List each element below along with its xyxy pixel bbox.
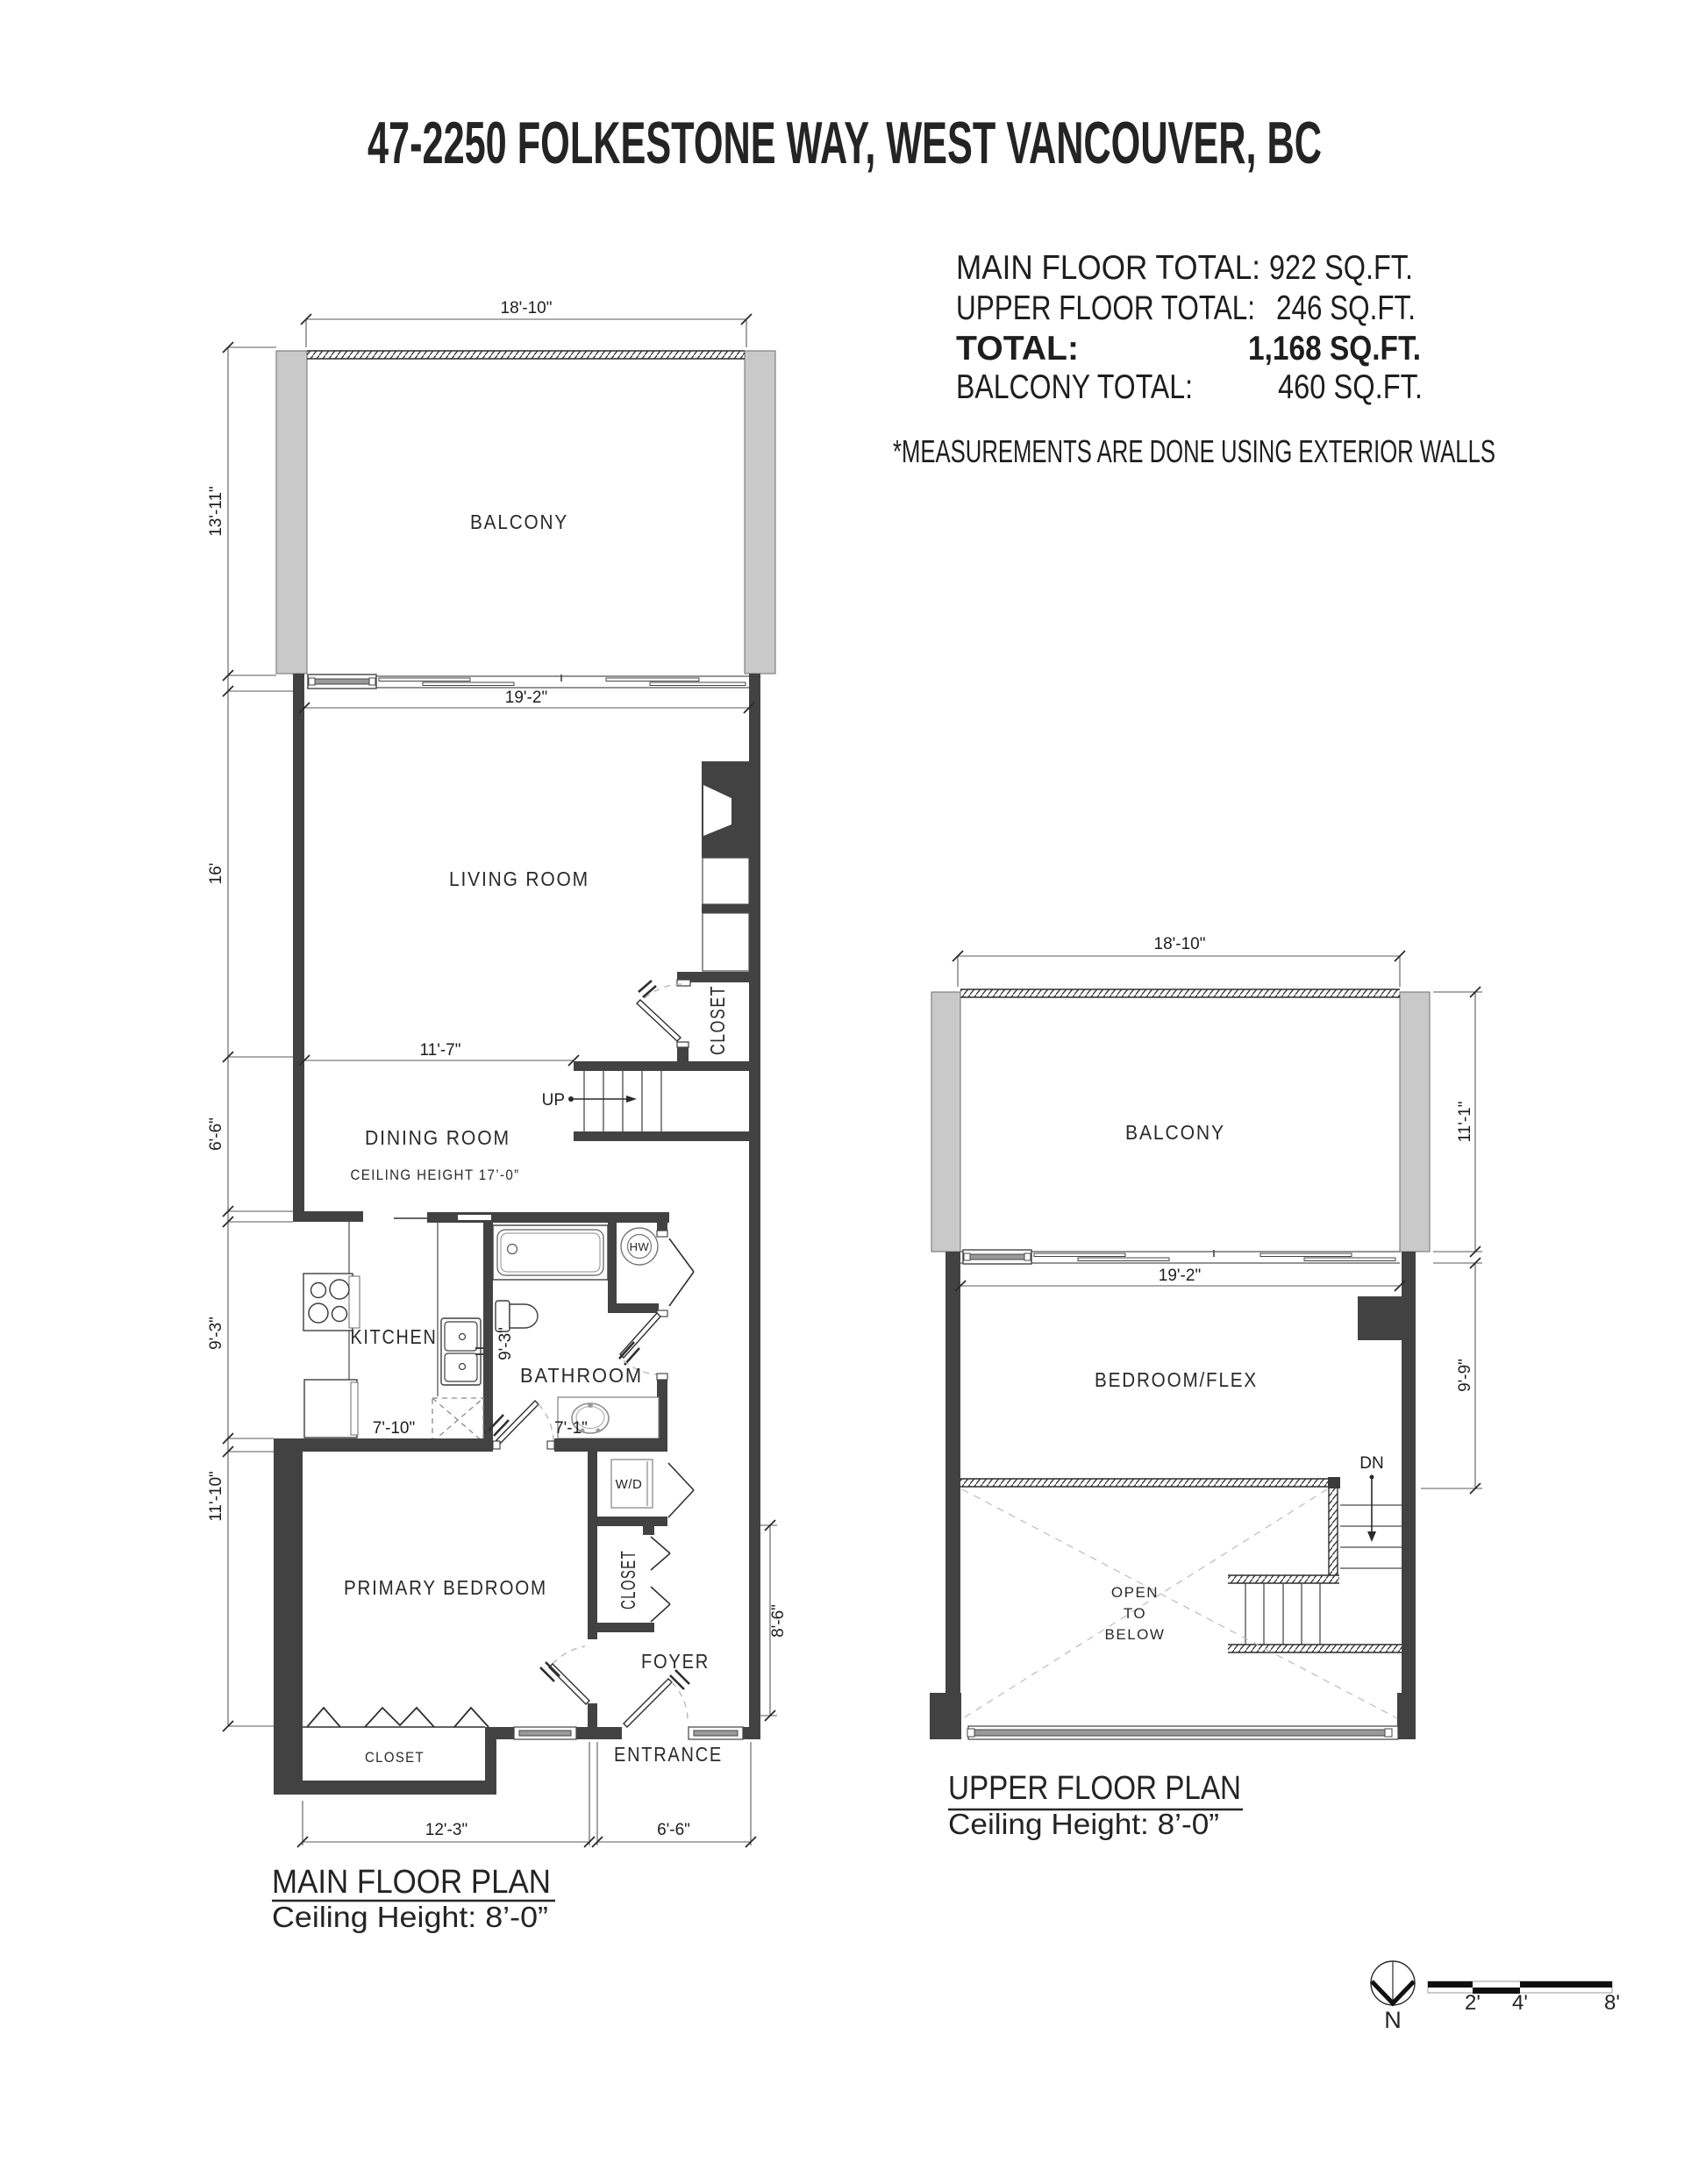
svg-text:UPPER FLOOR TOTAL:: UPPER FLOOR TOTAL:	[956, 289, 1255, 327]
svg-text:12'-3": 12'-3"	[425, 1821, 467, 1839]
svg-text:HW: HW	[630, 1240, 650, 1253]
svg-text:OPEN: OPEN	[1111, 1584, 1159, 1601]
svg-text:9'-9": 9'-9"	[1456, 1359, 1474, 1392]
svg-text:BALCONY: BALCONY	[1125, 1121, 1225, 1144]
svg-text:KITCHEN: KITCHEN	[351, 1325, 438, 1348]
svg-text:DINING ROOM: DINING ROOM	[365, 1126, 510, 1149]
svg-text:CLOSET: CLOSET	[365, 1749, 425, 1766]
svg-text:BATHROOM: BATHROOM	[520, 1364, 643, 1387]
svg-text:*MEASUREMENTS ARE DONE USING E: *MEASUREMENTS ARE DONE USING EXTERIOR WA…	[893, 433, 1495, 469]
svg-text:11'-10": 11'-10"	[207, 1471, 225, 1522]
svg-text:UP: UP	[542, 1091, 565, 1110]
svg-text:18'-10": 18'-10"	[1154, 935, 1206, 953]
svg-text:19'-2": 19'-2"	[1159, 1267, 1201, 1285]
svg-text:MAIN FLOOR PLAN: MAIN FLOOR PLAN	[272, 1864, 551, 1901]
svg-text:BELOW: BELOW	[1105, 1626, 1166, 1643]
svg-text:W/D: W/D	[616, 1477, 643, 1492]
svg-text:9'-3": 9'-3"	[496, 1327, 515, 1360]
svg-text:TOTAL:: TOTAL:	[956, 330, 1079, 368]
svg-text:460 SQ.FT.: 460 SQ.FT.	[1278, 368, 1423, 406]
svg-text:47-2250 FOLKESTONE WAY, WEST V: 47-2250 FOLKESTONE WAY, WEST VANCOUVER, …	[367, 110, 1322, 176]
svg-text:ENTRANCE: ENTRANCE	[614, 1743, 723, 1766]
svg-text:N: N	[1384, 2007, 1402, 2033]
svg-text:DN: DN	[1359, 1454, 1383, 1473]
svg-text:BEDROOM/FLEX: BEDROOM/FLEX	[1095, 1368, 1258, 1391]
svg-text:CLOSET: CLOSET	[706, 985, 729, 1055]
svg-text:FOYER: FOYER	[641, 1650, 710, 1673]
svg-text:LIVING ROOM: LIVING ROOM	[449, 867, 589, 890]
svg-text:11'-1": 11'-1"	[1456, 1102, 1474, 1143]
svg-text:MAIN FLOOR TOTAL:: MAIN FLOOR TOTAL:	[956, 249, 1260, 287]
svg-text:PRIMARY BEDROOM: PRIMARY BEDROOM	[344, 1576, 547, 1599]
svg-text:8': 8'	[1604, 1991, 1620, 2015]
svg-text:246 SQ.FT.: 246 SQ.FT.	[1276, 289, 1416, 327]
svg-text:4': 4'	[1512, 1991, 1528, 2015]
svg-text:9'-3": 9'-3"	[207, 1317, 225, 1350]
svg-text:BALCONY TOTAL:: BALCONY TOTAL:	[956, 368, 1193, 406]
svg-text:TO: TO	[1124, 1605, 1146, 1622]
svg-text:6'-6": 6'-6"	[207, 1117, 225, 1151]
svg-text:Ceiling Height: 8’-0”: Ceiling Height: 8’-0”	[948, 1808, 1219, 1840]
svg-text:CLOSET: CLOSET	[617, 1550, 639, 1609]
svg-text:13'-11": 13'-11"	[207, 486, 225, 537]
svg-text:19'-2": 19'-2"	[505, 689, 547, 707]
svg-text:Ceiling Height: 8’-0”: Ceiling Height: 8’-0”	[272, 1901, 548, 1933]
svg-text:8'-6": 8'-6"	[769, 1604, 788, 1638]
svg-text:922 SQ.FT.: 922 SQ.FT.	[1269, 249, 1413, 287]
svg-text:1,168 SQ.FT.: 1,168 SQ.FT.	[1248, 330, 1421, 368]
svg-text:6'-6": 6'-6"	[657, 1821, 690, 1839]
svg-text:7'-1": 7'-1"	[554, 1419, 588, 1438]
svg-text:UPPER FLOOR PLAN: UPPER FLOOR PLAN	[948, 1770, 1241, 1807]
svg-text:16': 16'	[207, 863, 225, 885]
svg-text:BALCONY: BALCONY	[470, 510, 568, 533]
svg-text:11'-7": 11'-7"	[420, 1041, 461, 1060]
svg-text:7'-10": 7'-10"	[373, 1419, 415, 1438]
svg-text:2': 2'	[1465, 1991, 1481, 2015]
svg-text:18'-10": 18'-10"	[501, 299, 553, 318]
svg-text:CEILING HEIGHT 17’-0”: CEILING HEIGHT 17’-0”	[351, 1167, 520, 1183]
